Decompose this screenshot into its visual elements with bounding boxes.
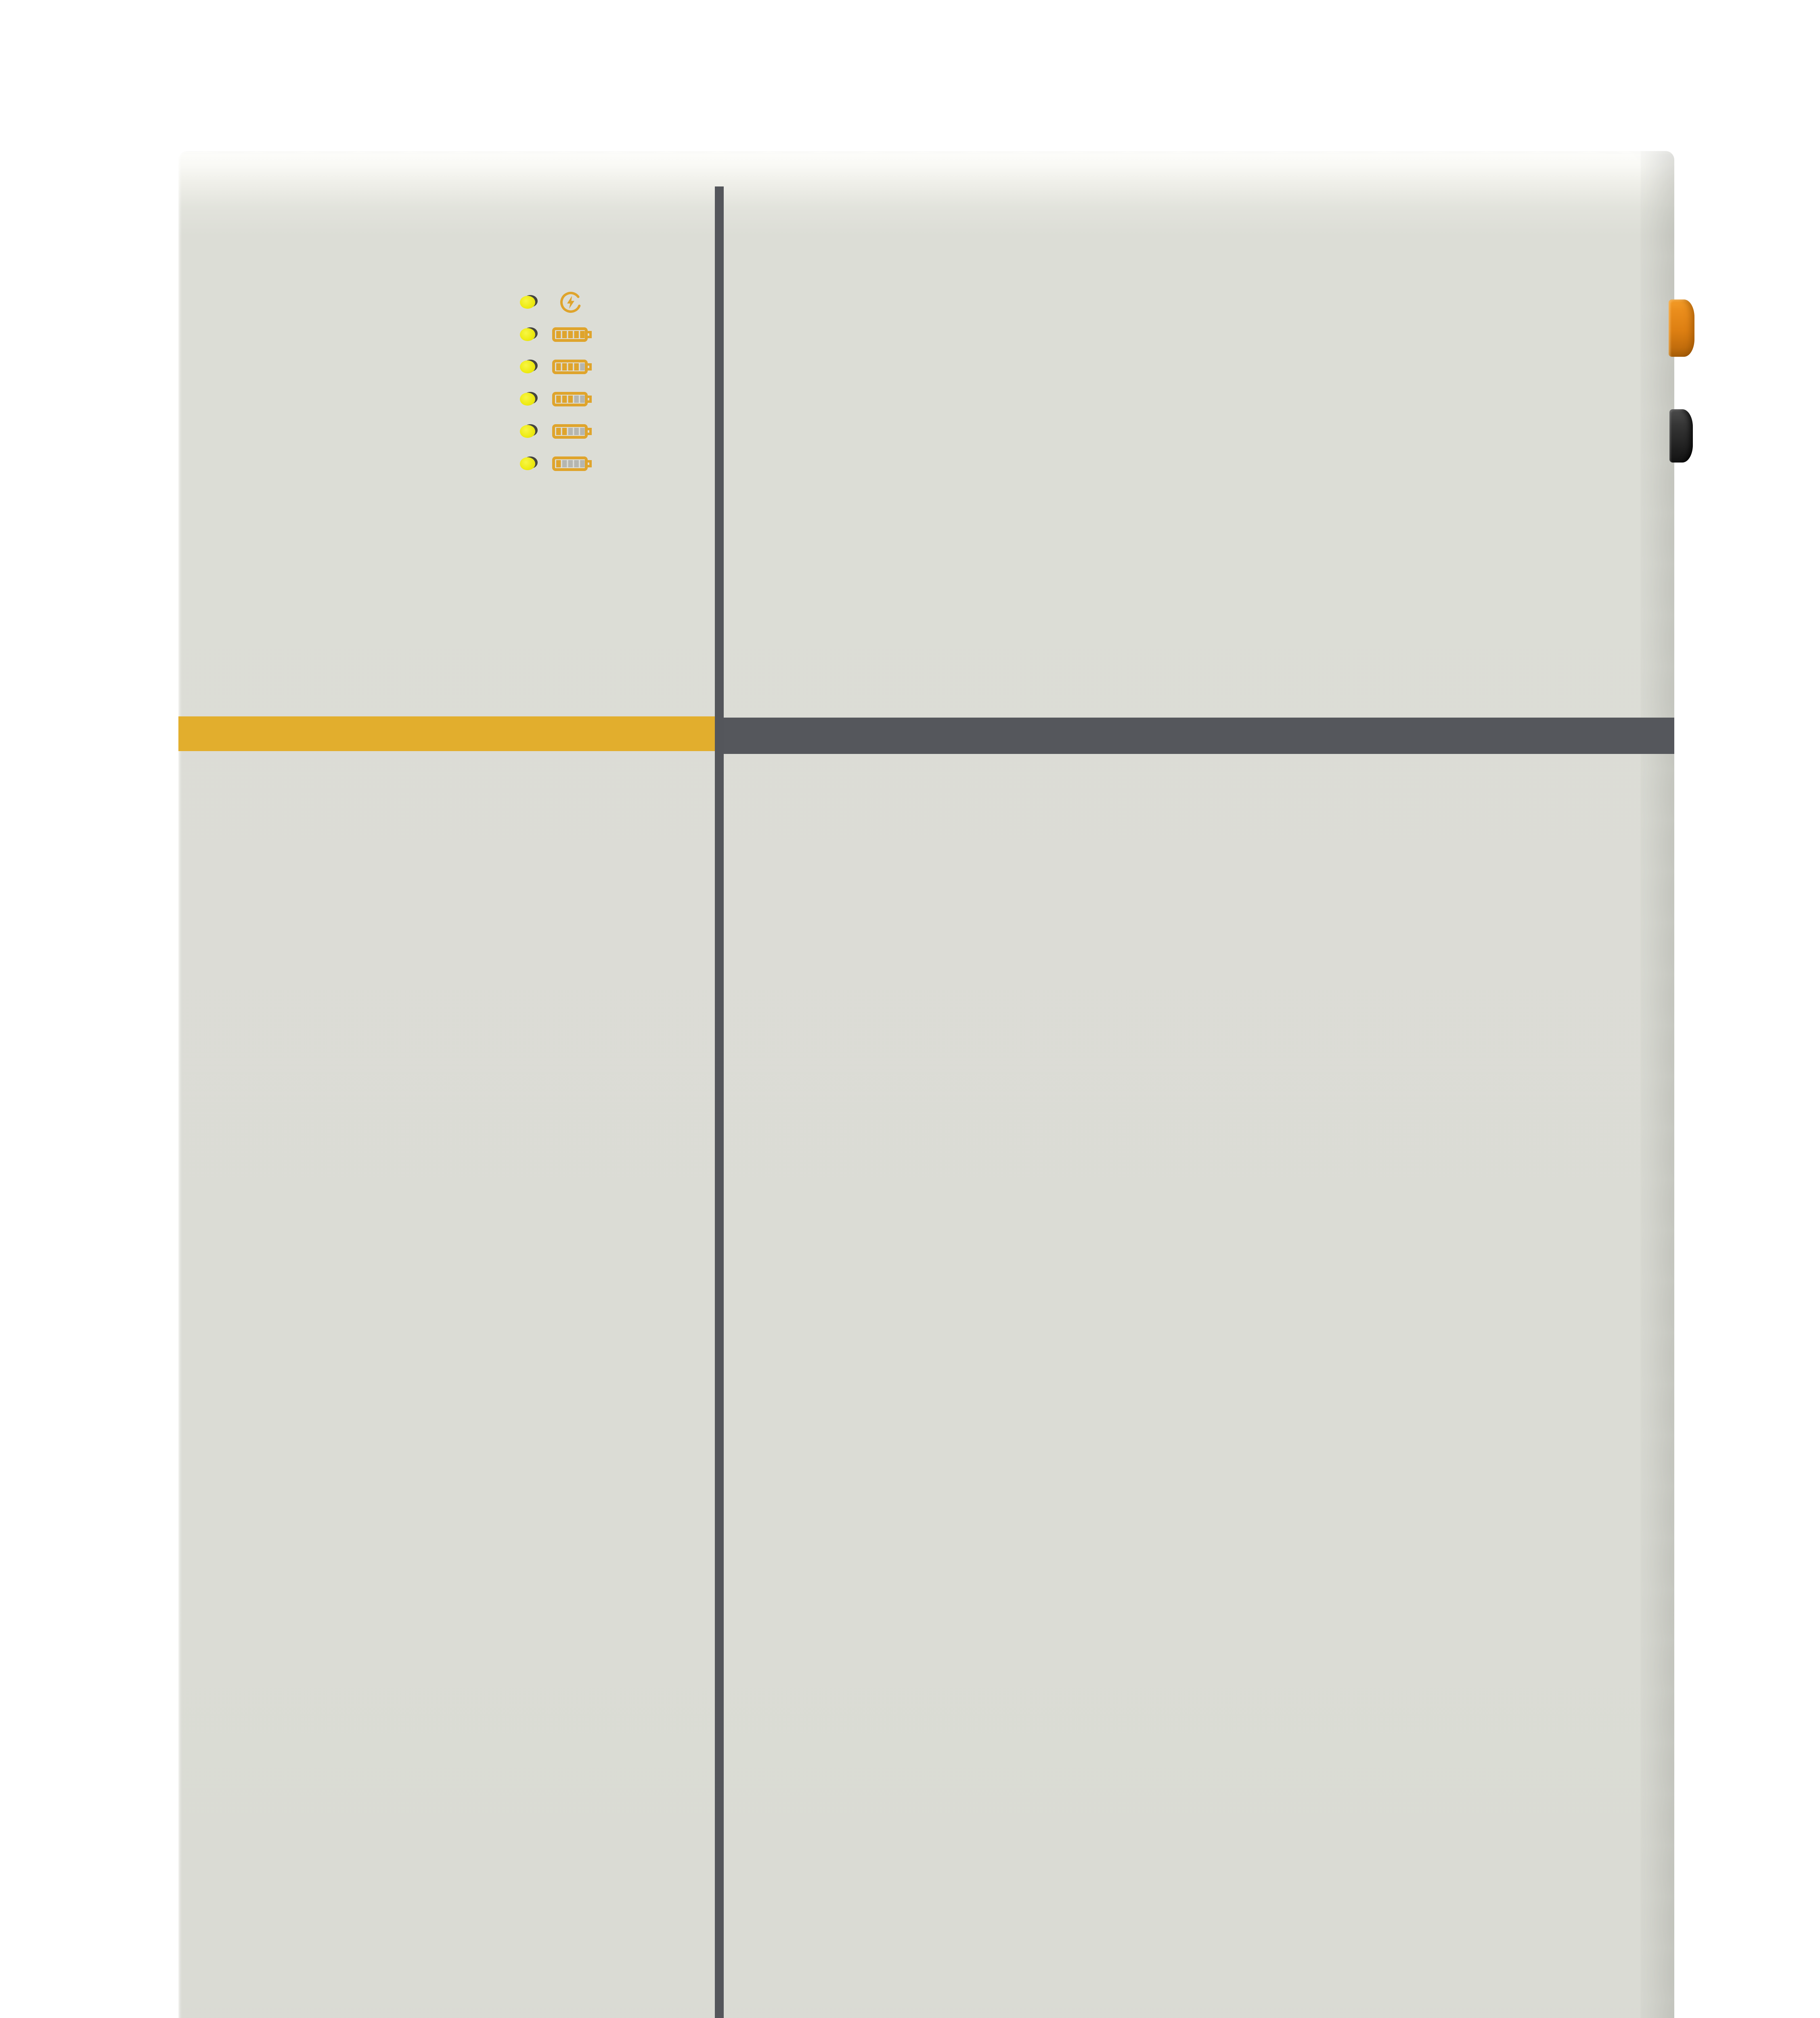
status-led [520,360,535,373]
led-indicator-row [178,419,622,444]
status-led [520,425,535,438]
product-photo-stage: TRIPLE POWER [0,0,1820,2018]
battery-level-icon [552,424,593,441]
battery-level-icon [552,360,593,376]
battery-cabinet-body: TRIPLE POWER [178,151,1674,2018]
led-indicator-row [178,387,622,411]
black-connector-knob [1669,409,1693,463]
status-led [520,328,535,341]
battery-level-icon [552,327,593,344]
led-indicator-row [178,452,622,476]
front-panel-divider-line [715,186,724,2018]
orange-connector-knob [1669,299,1694,357]
status-led [520,457,535,470]
accent-stripe-yellow [178,716,715,751]
charging-bolt-icon [559,291,582,316]
led-indicator-row [178,322,622,347]
accent-stripe-gray [724,718,1674,754]
battery-level-icon [552,392,593,408]
status-led [520,296,535,309]
battery-level-icon [552,456,593,473]
led-indicator-row [178,355,622,379]
status-led [520,393,535,406]
led-indicator-row [178,290,622,314]
